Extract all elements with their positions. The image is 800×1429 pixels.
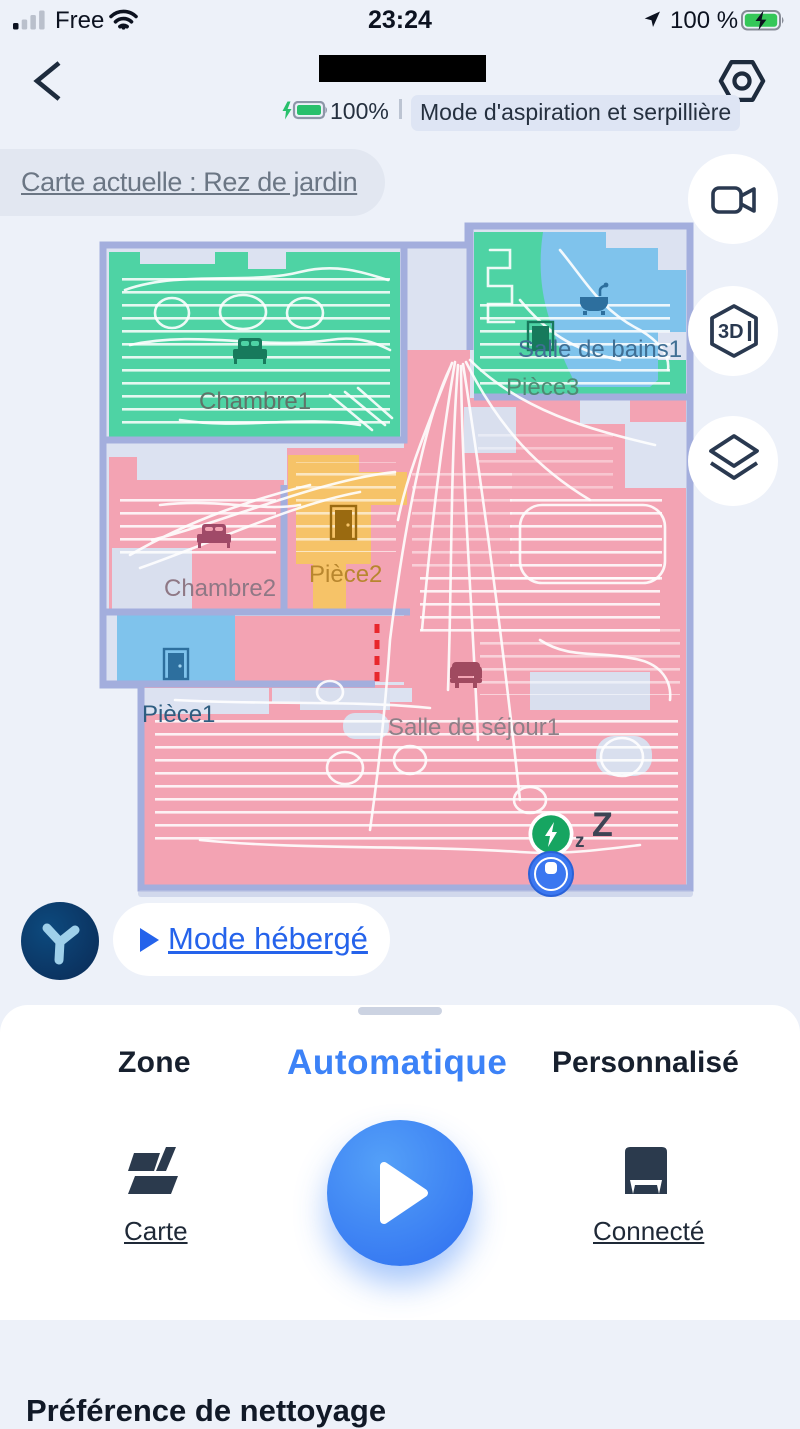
svg-text:Pièce3: Pièce3 (506, 374, 579, 401)
svg-text:3D: 3D (718, 321, 744, 343)
svg-text:z: z (575, 831, 585, 852)
svg-text:Salle de bains1: Salle de bains1 (518, 336, 682, 363)
svg-text:Pièce2: Pièce2 (309, 561, 382, 588)
svg-text:Chambre1: Chambre1 (199, 388, 311, 415)
svg-text:Salle de séjour1: Salle de séjour1 (388, 714, 560, 741)
svg-text:Pièce1: Pièce1 (142, 701, 215, 728)
svg-text:Z: Z (592, 806, 613, 844)
svg-text:Chambre2: Chambre2 (164, 575, 276, 602)
